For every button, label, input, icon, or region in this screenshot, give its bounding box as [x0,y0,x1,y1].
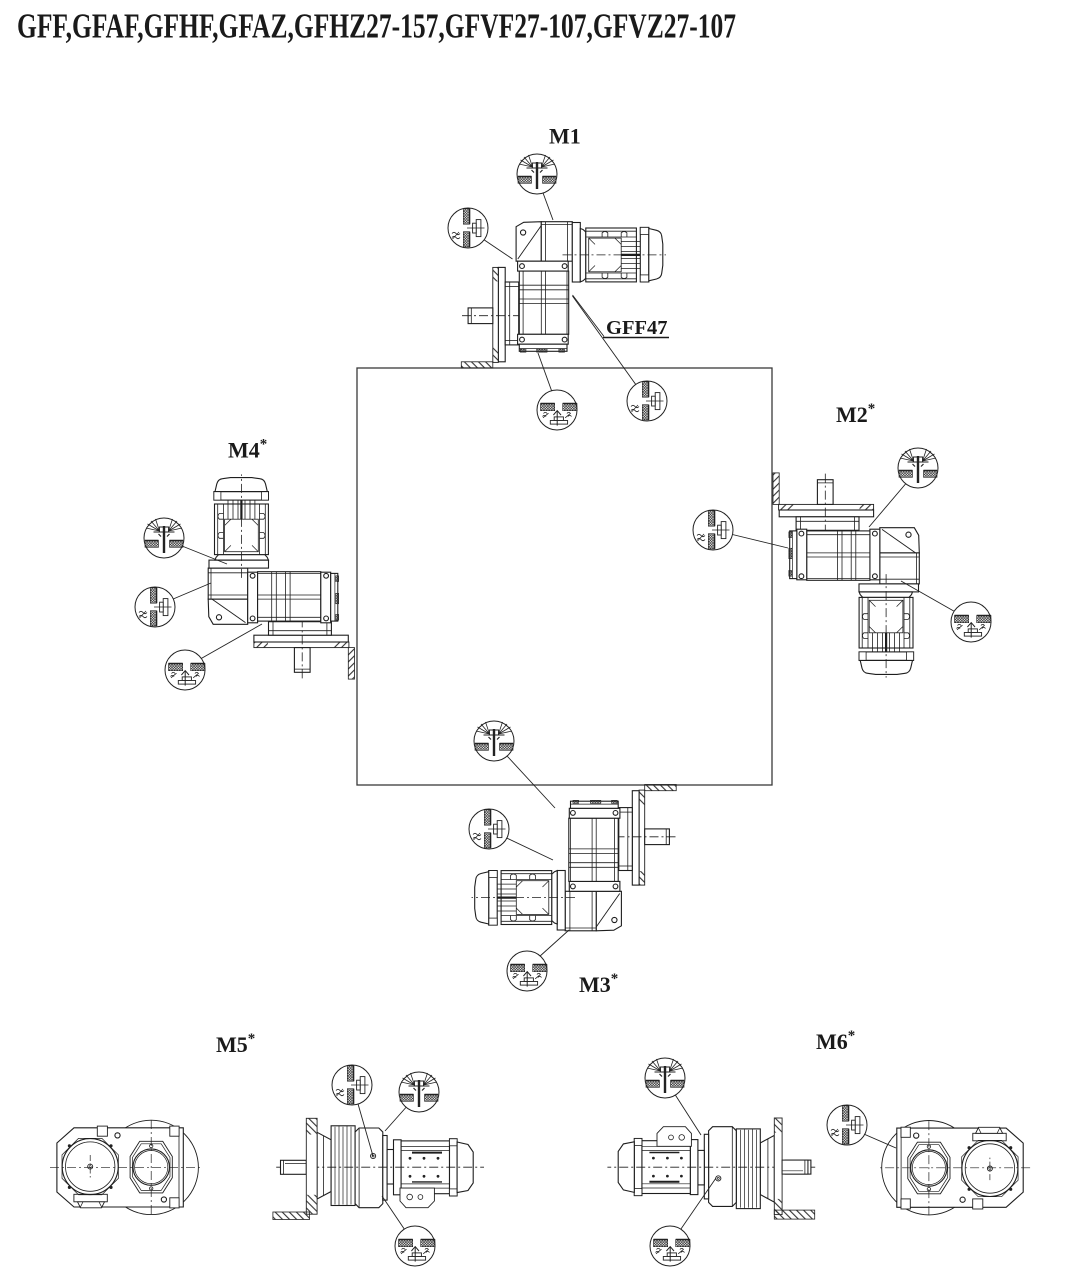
svg-text:M1: M1 [549,123,581,148]
svg-text:GFF,GFAF,GFHF,GFAZ,GFHZ27-157,: GFF,GFAF,GFHF,GFAZ,GFHZ27-157,GFVF27-107… [17,6,736,45]
svg-text:GFF47: GFF47 [606,317,668,339]
